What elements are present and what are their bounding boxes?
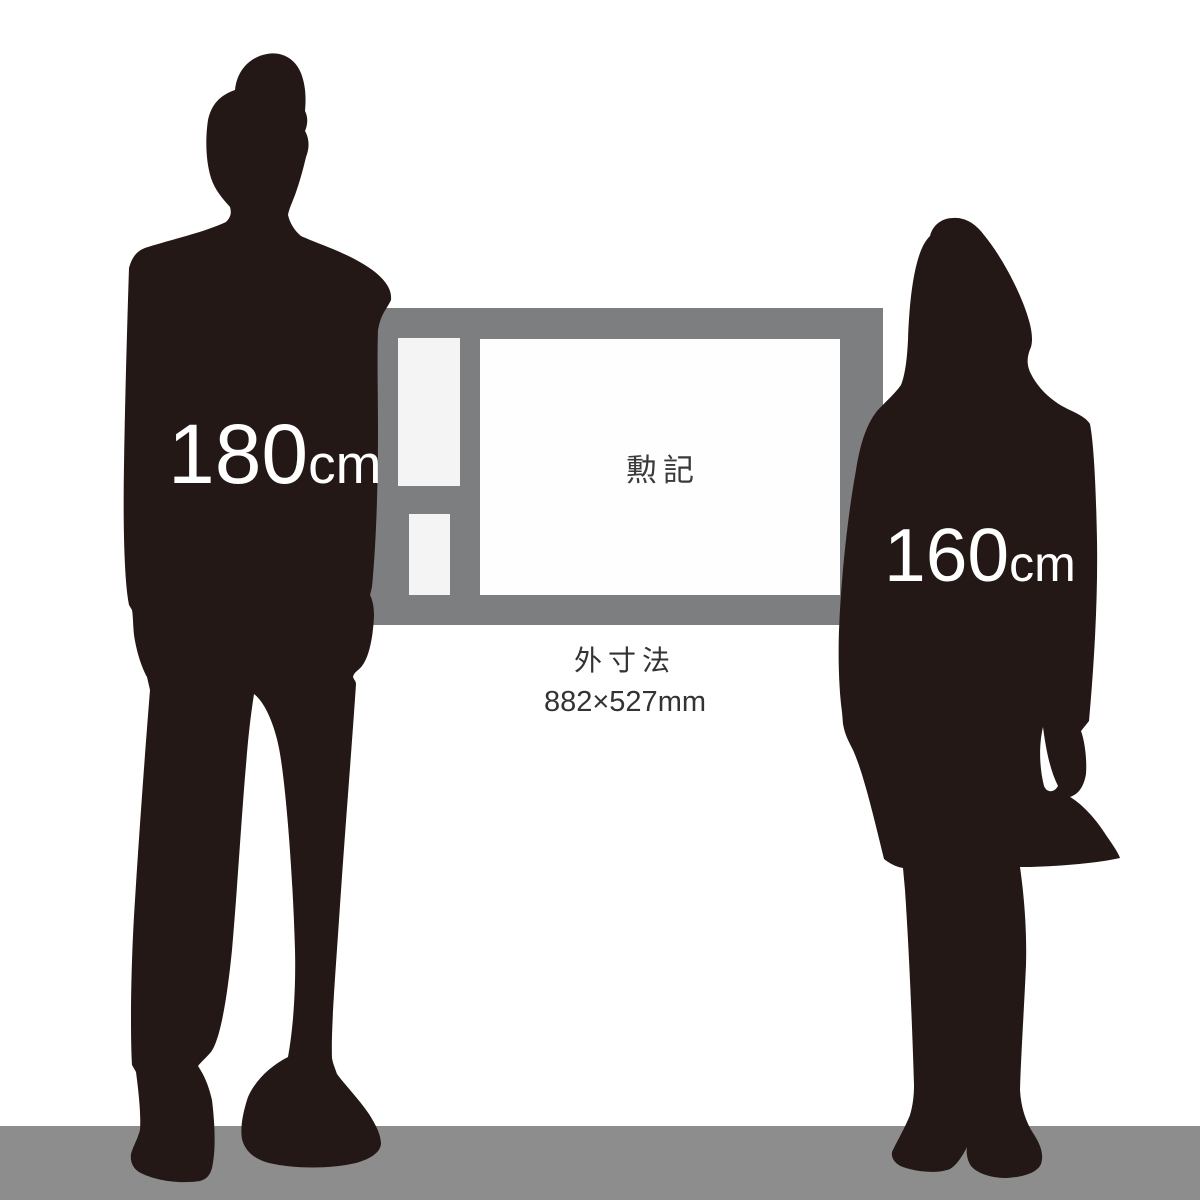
man-silhouette [124, 53, 391, 1182]
woman-hand-gap [1040, 727, 1058, 791]
man-height-label: 180cm [168, 412, 381, 496]
size-comparison-image: 勲記 外寸法 882×527mm 180cm 160cm [0, 0, 1200, 1200]
certificate-frame: 勲記 [366, 308, 883, 625]
certificate-title: 勲記 [626, 445, 700, 490]
man-height-value: 180 [168, 407, 308, 501]
frame-mat-tall-window [398, 338, 460, 486]
frame-mat-small-window [409, 514, 450, 595]
woman-height-label: 160cm [884, 518, 1076, 593]
certificate-window: 勲記 [480, 339, 840, 595]
woman-height-value: 160 [884, 513, 1009, 597]
outer-dimensions-value: 882×527mm [425, 684, 825, 720]
outer-dimensions-label: 外寸法 [425, 643, 825, 678]
woman-height-unit: cm [1009, 536, 1076, 592]
man-height-unit: cm [308, 433, 381, 495]
outer-dimensions-caption: 外寸法 882×527mm [425, 643, 825, 720]
floor [0, 1126, 1200, 1200]
